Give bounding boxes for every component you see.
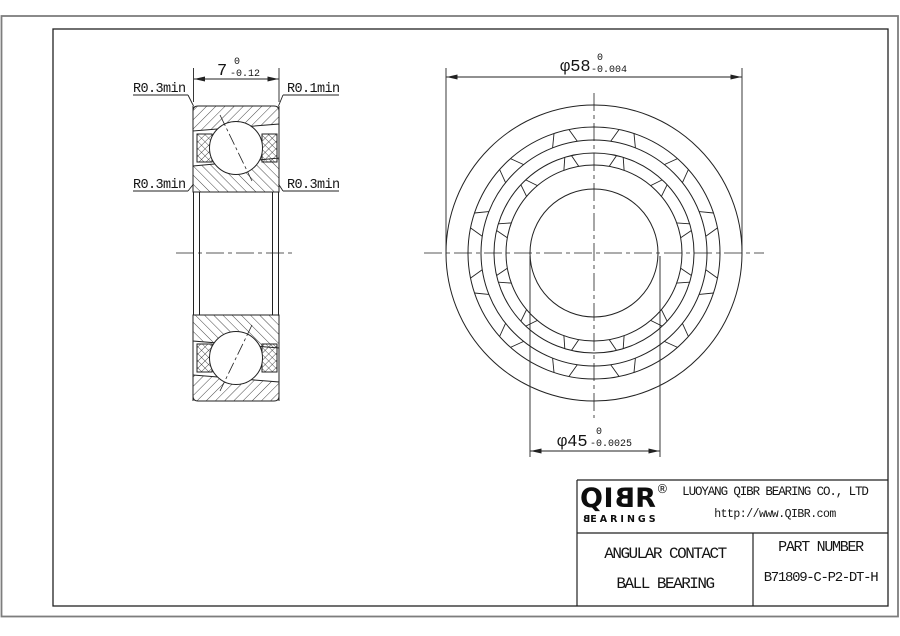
radius-label-mid-right: R0.3min bbox=[287, 178, 340, 193]
dim-bore-value: φ45 bbox=[557, 433, 588, 452]
company-name: LUOYANG QIBR BEARING CO., LTD bbox=[664, 485, 886, 499]
product-name-line1: ANGULAR CONTACT bbox=[577, 539, 753, 569]
cage-section-top-right bbox=[262, 134, 277, 162]
dim-width-value: 7 bbox=[217, 62, 227, 81]
radius-label-top-right: R0.1min bbox=[287, 82, 340, 97]
cage-section-bottom-right bbox=[262, 344, 277, 372]
logo-subtitle: BEARINGS bbox=[580, 514, 668, 525]
company-logo: QIBR® BEARINGS bbox=[580, 483, 668, 525]
dim-od-value: φ58 bbox=[560, 58, 591, 77]
drawing-sheet: 7 0 -0.12 φ58 0 -0.004 φ45 0 -0.0025 R0.… bbox=[0, 0, 900, 636]
outer-border bbox=[2, 16, 899, 617]
company-website: http://www.QIBR.com bbox=[664, 508, 886, 521]
product-name-line2: BALL BEARING bbox=[577, 569, 753, 599]
part-number-value: B71809-C-P2-DT-H bbox=[748, 570, 893, 586]
product-name: ANGULAR CONTACT BALL BEARING bbox=[577, 539, 753, 599]
part-number-label: PART NUMBER bbox=[753, 539, 888, 556]
dim-width-tol-lower: -0.12 bbox=[230, 69, 260, 80]
dim-bore-tol-upper: 0 bbox=[596, 427, 602, 438]
section-view bbox=[176, 106, 296, 401]
dim-width-tol-upper: 0 bbox=[234, 57, 240, 68]
radius-label-mid-left: R0.3min bbox=[133, 178, 186, 193]
logo-wordmark: QIBR® bbox=[580, 483, 668, 512]
dim-bore-tol-lower: -0.0025 bbox=[590, 439, 632, 450]
front-view bbox=[424, 93, 764, 418]
radius-label-top-left: R0.3min bbox=[133, 82, 186, 97]
dim-od-tol-lower: -0.004 bbox=[591, 65, 627, 76]
dim-od-tol-upper: 0 bbox=[597, 53, 603, 64]
